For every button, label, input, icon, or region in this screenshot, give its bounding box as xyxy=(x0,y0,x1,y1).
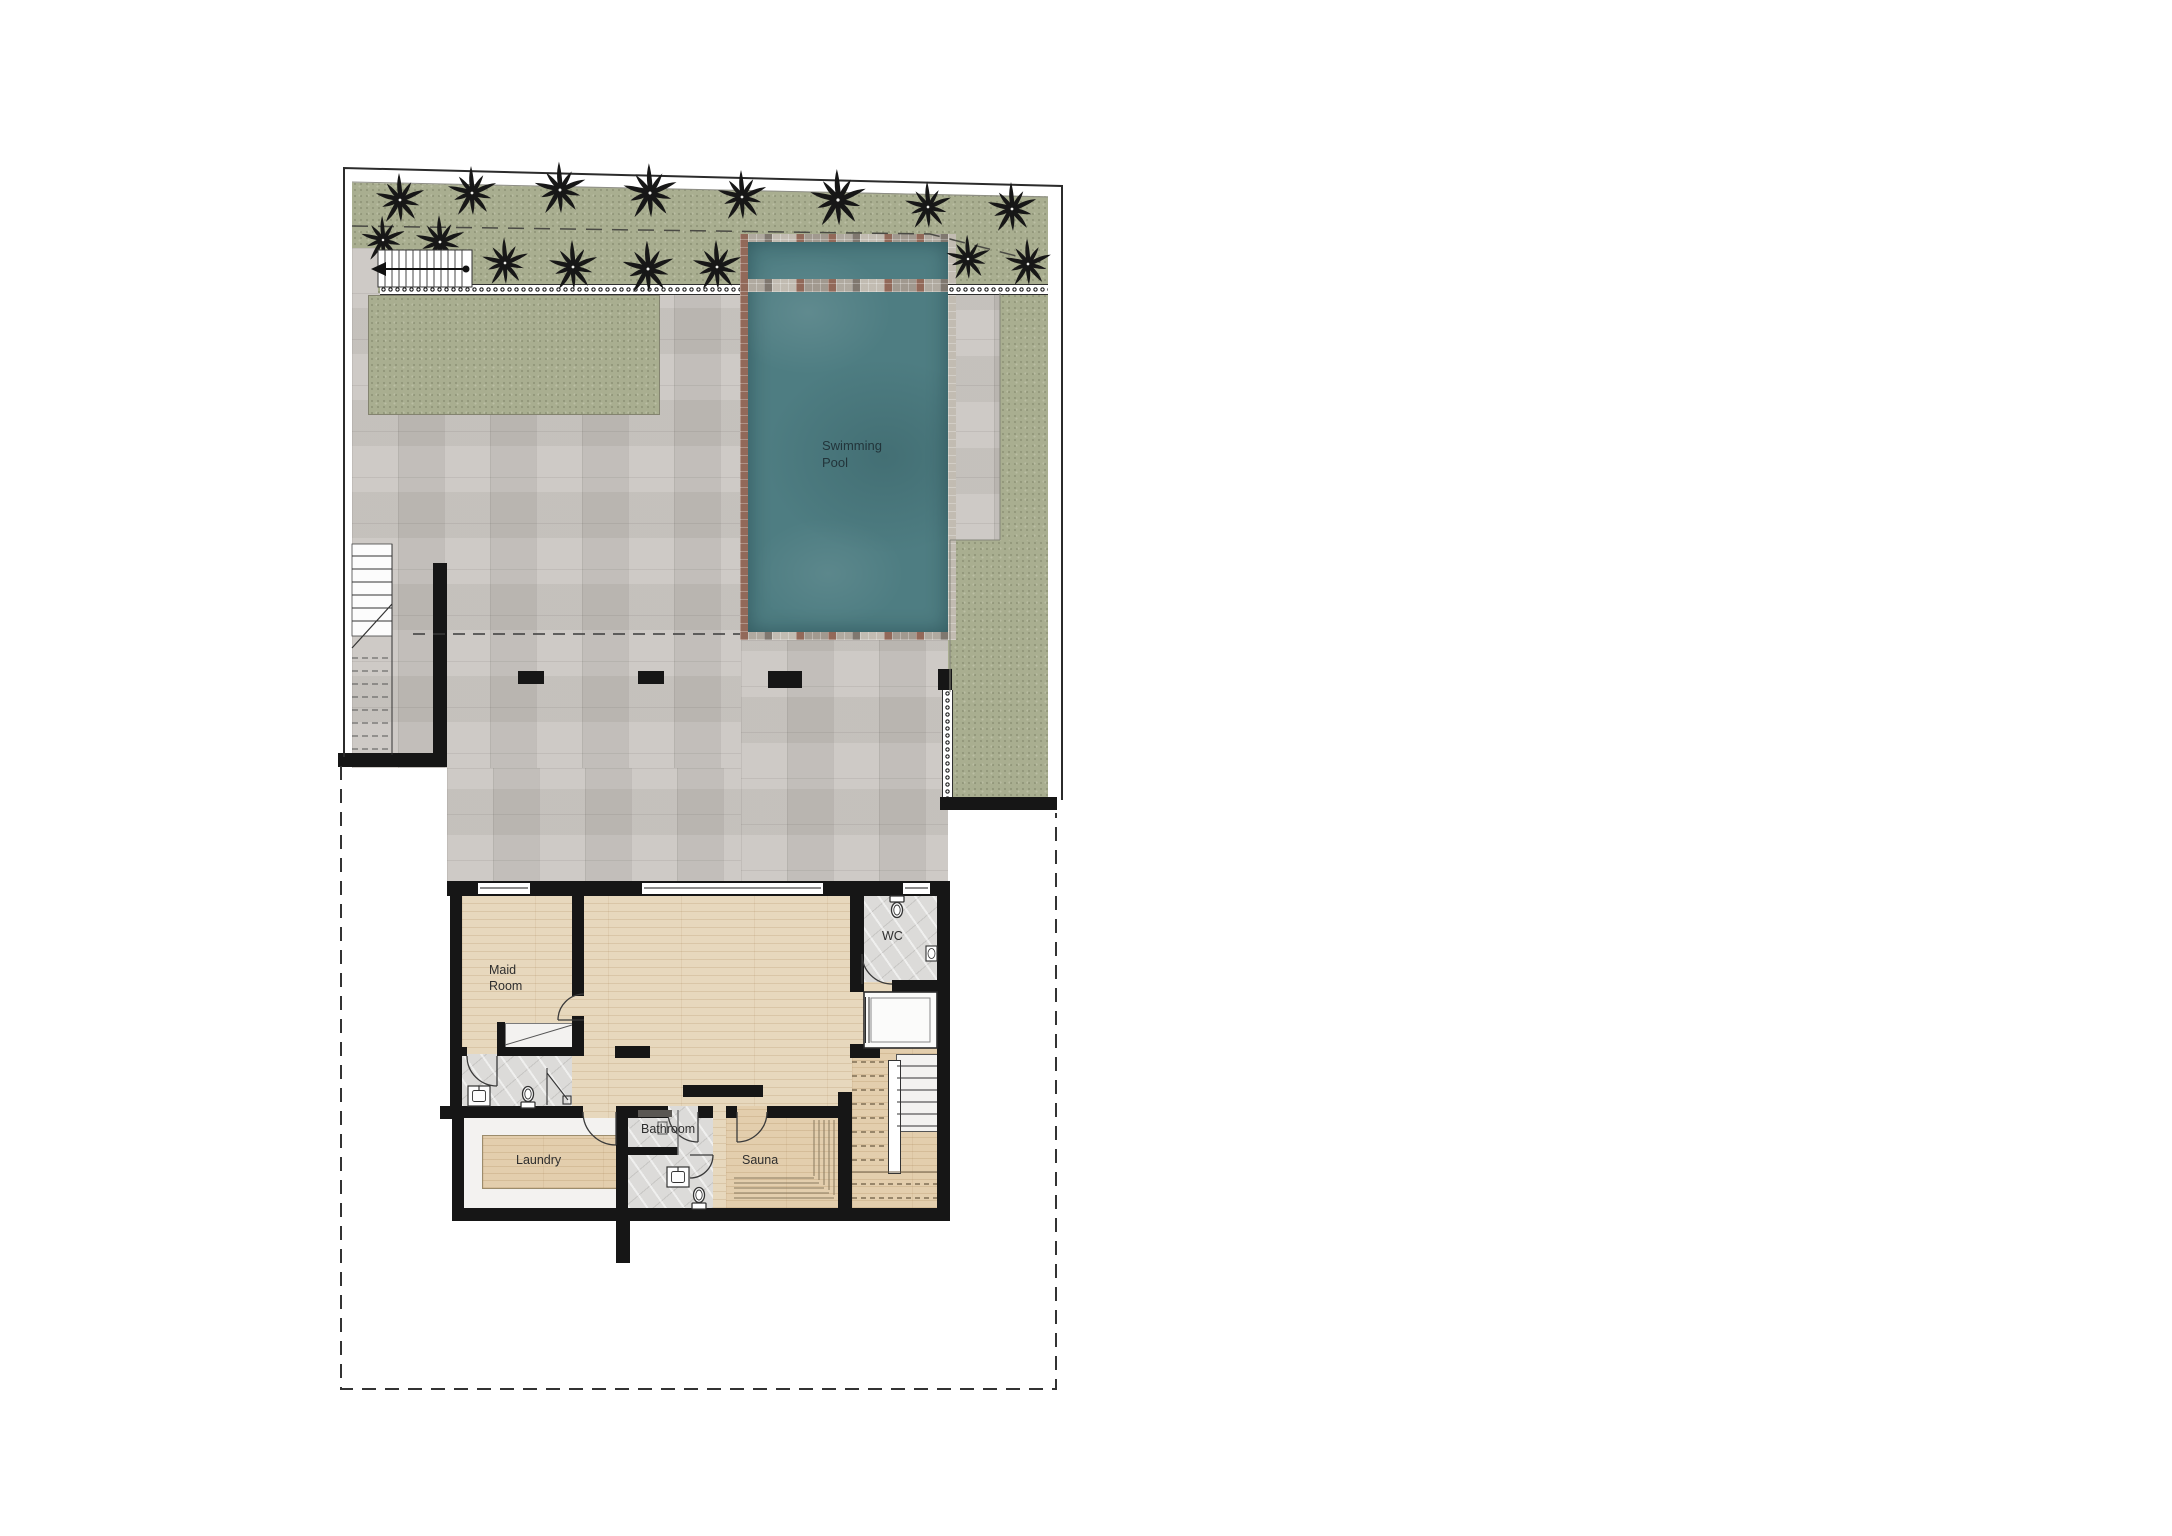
garden-fence-left xyxy=(380,284,740,295)
maid-closet xyxy=(505,1023,574,1049)
wall-right xyxy=(937,881,950,1221)
wall-maid-hall xyxy=(572,894,584,996)
wc-window xyxy=(903,883,930,894)
wall-maidbath-top xyxy=(497,1047,572,1056)
room-label-maid-room: Maid Room xyxy=(489,962,537,995)
wall-maidbath-top-left xyxy=(452,1047,467,1056)
room-label-laundry: Laundry xyxy=(516,1152,561,1168)
wall-closet-left xyxy=(497,1022,505,1048)
wall-bottom-stub xyxy=(616,1221,630,1263)
wall-hall-stair-stub xyxy=(683,1085,763,1097)
wall-stair-left xyxy=(838,1092,852,1221)
room-label-wc: WC xyxy=(882,928,903,944)
elevator-cab xyxy=(864,992,937,1048)
wall-laundry-left xyxy=(452,1106,464,1220)
wall-wc-left xyxy=(850,894,864,992)
garden-fence-right xyxy=(948,284,1048,295)
wall-maid-hall-lower xyxy=(572,1016,584,1056)
garden-right-upper xyxy=(1000,293,1048,540)
wall-bath-top-b xyxy=(698,1106,713,1118)
terrace-fence-vertical xyxy=(942,690,953,797)
wall-sauna-top-a xyxy=(726,1106,737,1118)
terrace-sliding-door xyxy=(642,883,823,894)
swimming-pool-water xyxy=(748,242,948,632)
wall-left xyxy=(450,881,462,1115)
terrace-column-1 xyxy=(518,671,544,684)
wall-bath-partition xyxy=(628,1147,678,1155)
terrace-column-4 xyxy=(938,669,952,690)
stair-upper-flight xyxy=(896,1054,939,1132)
retaining-wall-bottom-right xyxy=(940,797,1057,810)
retaining-wall-vertical xyxy=(433,563,447,755)
wall-below-elevator xyxy=(850,1044,880,1058)
floor-plan-page: { "plan": { "rooms": { "swimming_pool": … xyxy=(0,0,2172,1536)
terrace-column-3 xyxy=(768,671,802,688)
wall-sauna-top-b xyxy=(767,1106,838,1118)
retaining-wall-bottom-left xyxy=(338,753,447,767)
wall-corridor-laundry xyxy=(464,1106,583,1118)
garden-right-lower xyxy=(948,540,1048,797)
wall-wc-bottom-a xyxy=(850,980,862,992)
wall-bottom xyxy=(452,1208,950,1221)
room-label-swimming-pool: Swimming Pool xyxy=(822,438,894,472)
plan-linework xyxy=(0,0,2172,1536)
wall-bath-top-a xyxy=(628,1106,668,1118)
lawn-patch xyxy=(368,295,660,415)
pool-cross-band xyxy=(740,279,956,292)
terrace-pavers-lower xyxy=(447,768,741,881)
room-label-bathroom: Bathroom xyxy=(641,1121,721,1137)
wall-laundry-bath xyxy=(616,1106,628,1208)
corner-pavers-top-left xyxy=(352,248,378,293)
floor-plan-canvas: Swimming Pool Maid Room WC Bathroom Laun… xyxy=(0,0,2172,1536)
room-label-sauna: Sauna xyxy=(742,1152,778,1168)
wall-wc-bottom-b xyxy=(892,980,950,992)
maid-window xyxy=(478,883,530,894)
maid-bathroom-floor xyxy=(462,1054,572,1107)
wall-hall-stub xyxy=(615,1046,650,1058)
stair-divider xyxy=(888,1060,901,1174)
terrace-column-2 xyxy=(638,671,664,684)
